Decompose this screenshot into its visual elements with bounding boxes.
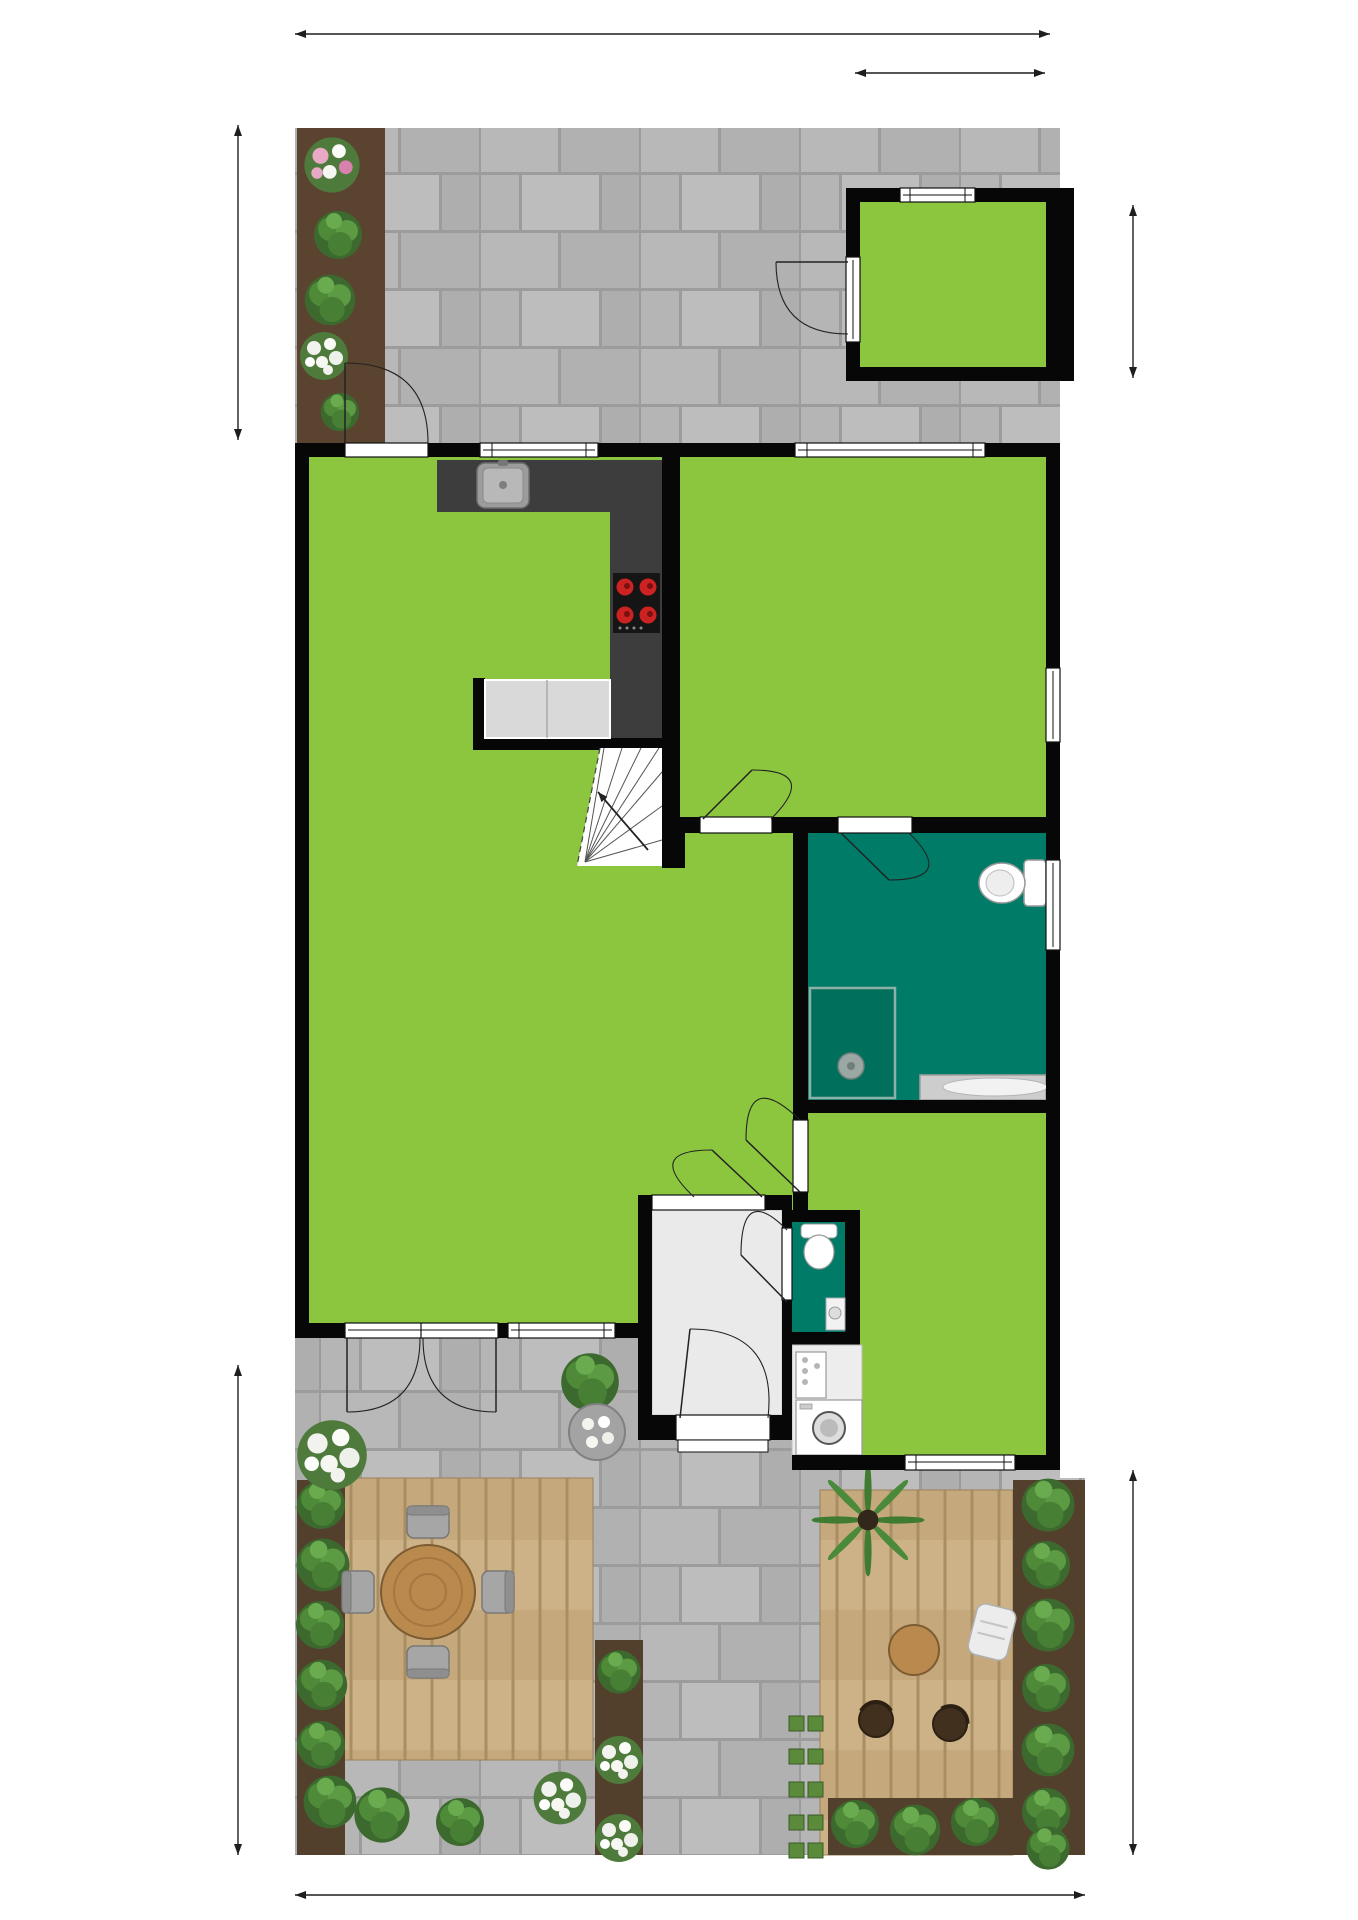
garden-table	[381, 1545, 475, 1639]
flower-planter	[569, 1404, 625, 1460]
garden-chair	[407, 1506, 449, 1538]
bistro-table	[889, 1625, 939, 1675]
stove	[613, 573, 660, 633]
corner-sink	[826, 1298, 845, 1330]
woonkamer-front-window	[508, 1323, 615, 1338]
toilet-fixture-small	[801, 1224, 837, 1269]
floor-plan	[0, 0, 1358, 1920]
floor-plan-canvas	[0, 0, 1358, 1920]
berging-window	[900, 188, 975, 202]
berging-floor	[860, 202, 1046, 367]
keuken-window	[480, 443, 598, 457]
slaapkamer-side-window	[1046, 668, 1060, 742]
entree-floor	[652, 1210, 782, 1415]
dark-chair	[859, 1702, 893, 1737]
slaapkamer-window	[795, 443, 985, 457]
shower	[810, 988, 895, 1098]
woonkamer-keuken-floor	[309, 457, 662, 1323]
meter-closet-zone	[792, 1345, 862, 1455]
palm-plant	[812, 1464, 925, 1577]
bijkeuken-window	[905, 1455, 1015, 1470]
badkamer-window	[1046, 860, 1060, 950]
slaapkamer-floor	[680, 457, 1046, 817]
garden-chair	[407, 1646, 449, 1678]
potted-plant	[561, 1353, 619, 1411]
kitchen-sink	[477, 460, 529, 508]
top-flower-bed	[297, 128, 385, 443]
garden-chair	[342, 1571, 374, 1613]
bathtub	[920, 1075, 1047, 1100]
toilet-fixture	[979, 860, 1046, 906]
toilet-room	[782, 1210, 860, 1345]
washing-machine	[796, 1400, 862, 1455]
meter-cabinet	[796, 1352, 826, 1398]
garden-chair	[482, 1571, 514, 1613]
